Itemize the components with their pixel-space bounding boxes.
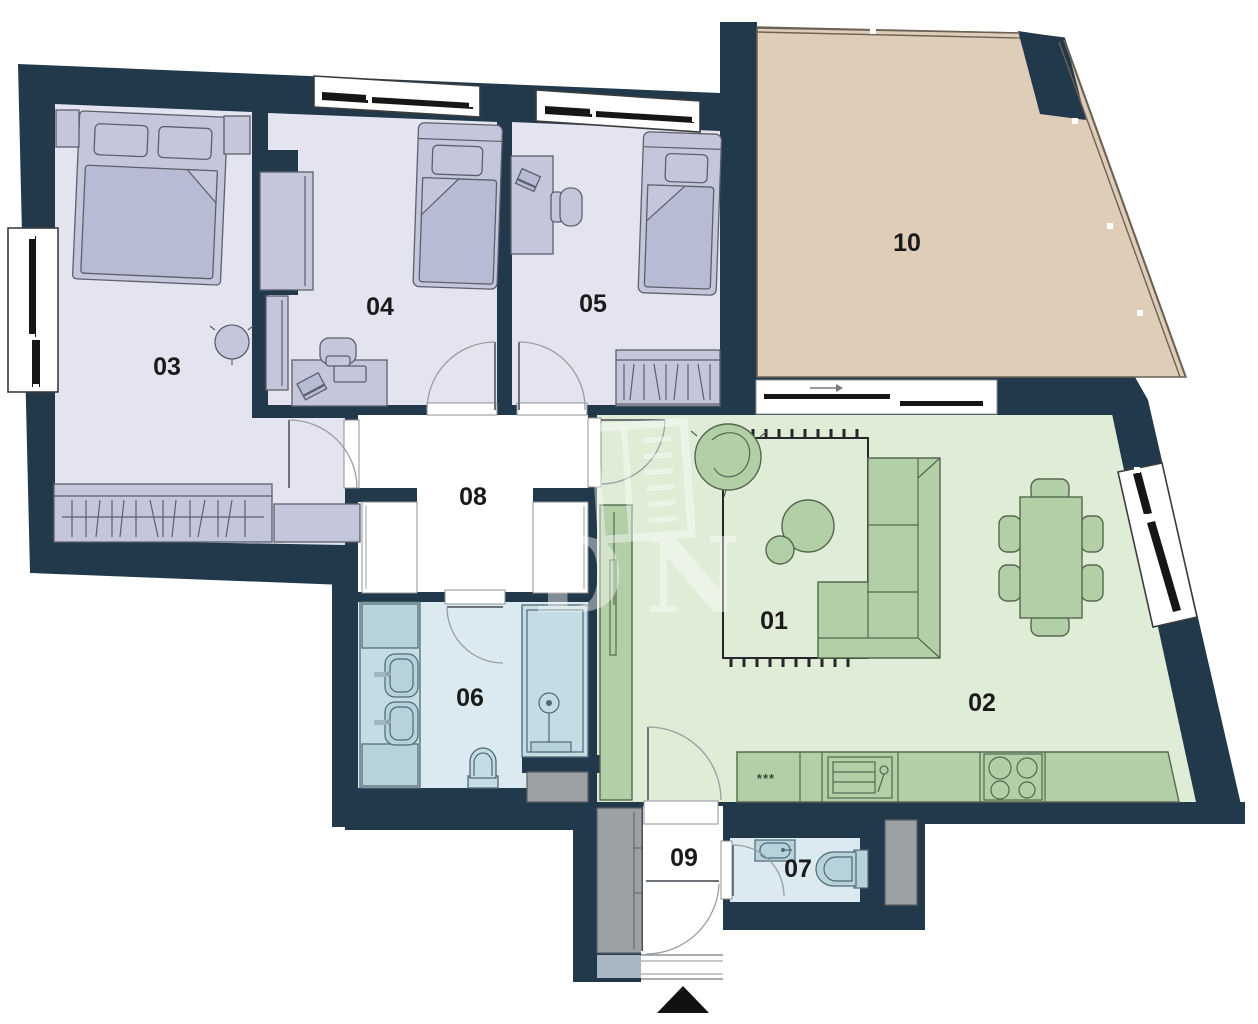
room-09-floor	[643, 806, 723, 953]
wall-below-shower	[522, 755, 600, 773]
room-04-label: 04	[366, 293, 394, 321]
kitchen-counter: ***	[737, 752, 1179, 802]
hall-closet-stub-left	[358, 488, 417, 502]
room-07-label: 07	[784, 855, 812, 883]
double-bed	[72, 111, 227, 285]
railing-tick	[870, 28, 876, 34]
dining-chair	[1081, 516, 1103, 552]
railing-tick	[1137, 310, 1143, 316]
wall-bath-left-outer	[332, 560, 358, 827]
floor-plan-page: ***	[0, 0, 1258, 1024]
watermark-text: DN	[533, 514, 762, 637]
window-room03-left	[8, 228, 58, 392]
railing-tick	[1107, 223, 1113, 229]
room-09-label: 09	[670, 844, 698, 872]
single-bed-05	[638, 132, 722, 296]
entry-mat	[597, 955, 641, 978]
dining-chair	[999, 565, 1021, 601]
wc-toilet	[816, 850, 868, 888]
nightstand-left	[56, 110, 79, 147]
sill-wc-door	[721, 841, 732, 899]
wardrobe-room03	[54, 484, 272, 542]
room-01-label: 01	[760, 607, 788, 635]
coffee-table-small	[766, 536, 794, 564]
dining-chair	[1081, 565, 1103, 601]
room-05-label: 05	[579, 290, 607, 318]
nightstand-right	[224, 116, 250, 154]
wardrobe-room05	[616, 350, 720, 406]
entry-wardrobe	[597, 808, 642, 953]
entrance-marker-icon	[657, 986, 709, 1013]
shaft-below-shower	[527, 772, 588, 802]
entry-threshold	[641, 951, 723, 982]
terrace	[757, 27, 1186, 377]
dining-chair	[999, 516, 1021, 552]
hall-closet-left	[362, 502, 417, 593]
toilet-06	[468, 748, 498, 788]
railing-tick	[1072, 118, 1078, 124]
room-10-label: 10	[893, 229, 921, 257]
cabinet-room03	[274, 504, 360, 542]
dining-table	[1020, 497, 1082, 618]
room-06-label: 06	[456, 684, 484, 712]
floor-plan-svg: ***	[0, 0, 1258, 1024]
vanity-cabinet-bottom	[362, 744, 418, 786]
room-08-label: 08	[459, 483, 487, 511]
room-02-label: 02	[968, 689, 996, 717]
vanity-cabinet-top	[362, 604, 418, 648]
hall-closet-stub-right	[533, 488, 588, 502]
sill-room04-door	[427, 403, 497, 415]
shaft-right-of-wc	[885, 820, 917, 905]
room-03-label: 03	[153, 353, 181, 381]
sill-living-entry-door	[644, 801, 718, 824]
dishwasher-marks: ***	[757, 771, 775, 786]
terrace-sliding-door	[756, 380, 997, 414]
bookshelf-room04	[266, 296, 288, 390]
terrace-floor	[757, 28, 1186, 377]
single-bed-04	[413, 123, 503, 290]
sill-room05-door	[517, 403, 587, 415]
sill-bath-door	[445, 590, 505, 604]
